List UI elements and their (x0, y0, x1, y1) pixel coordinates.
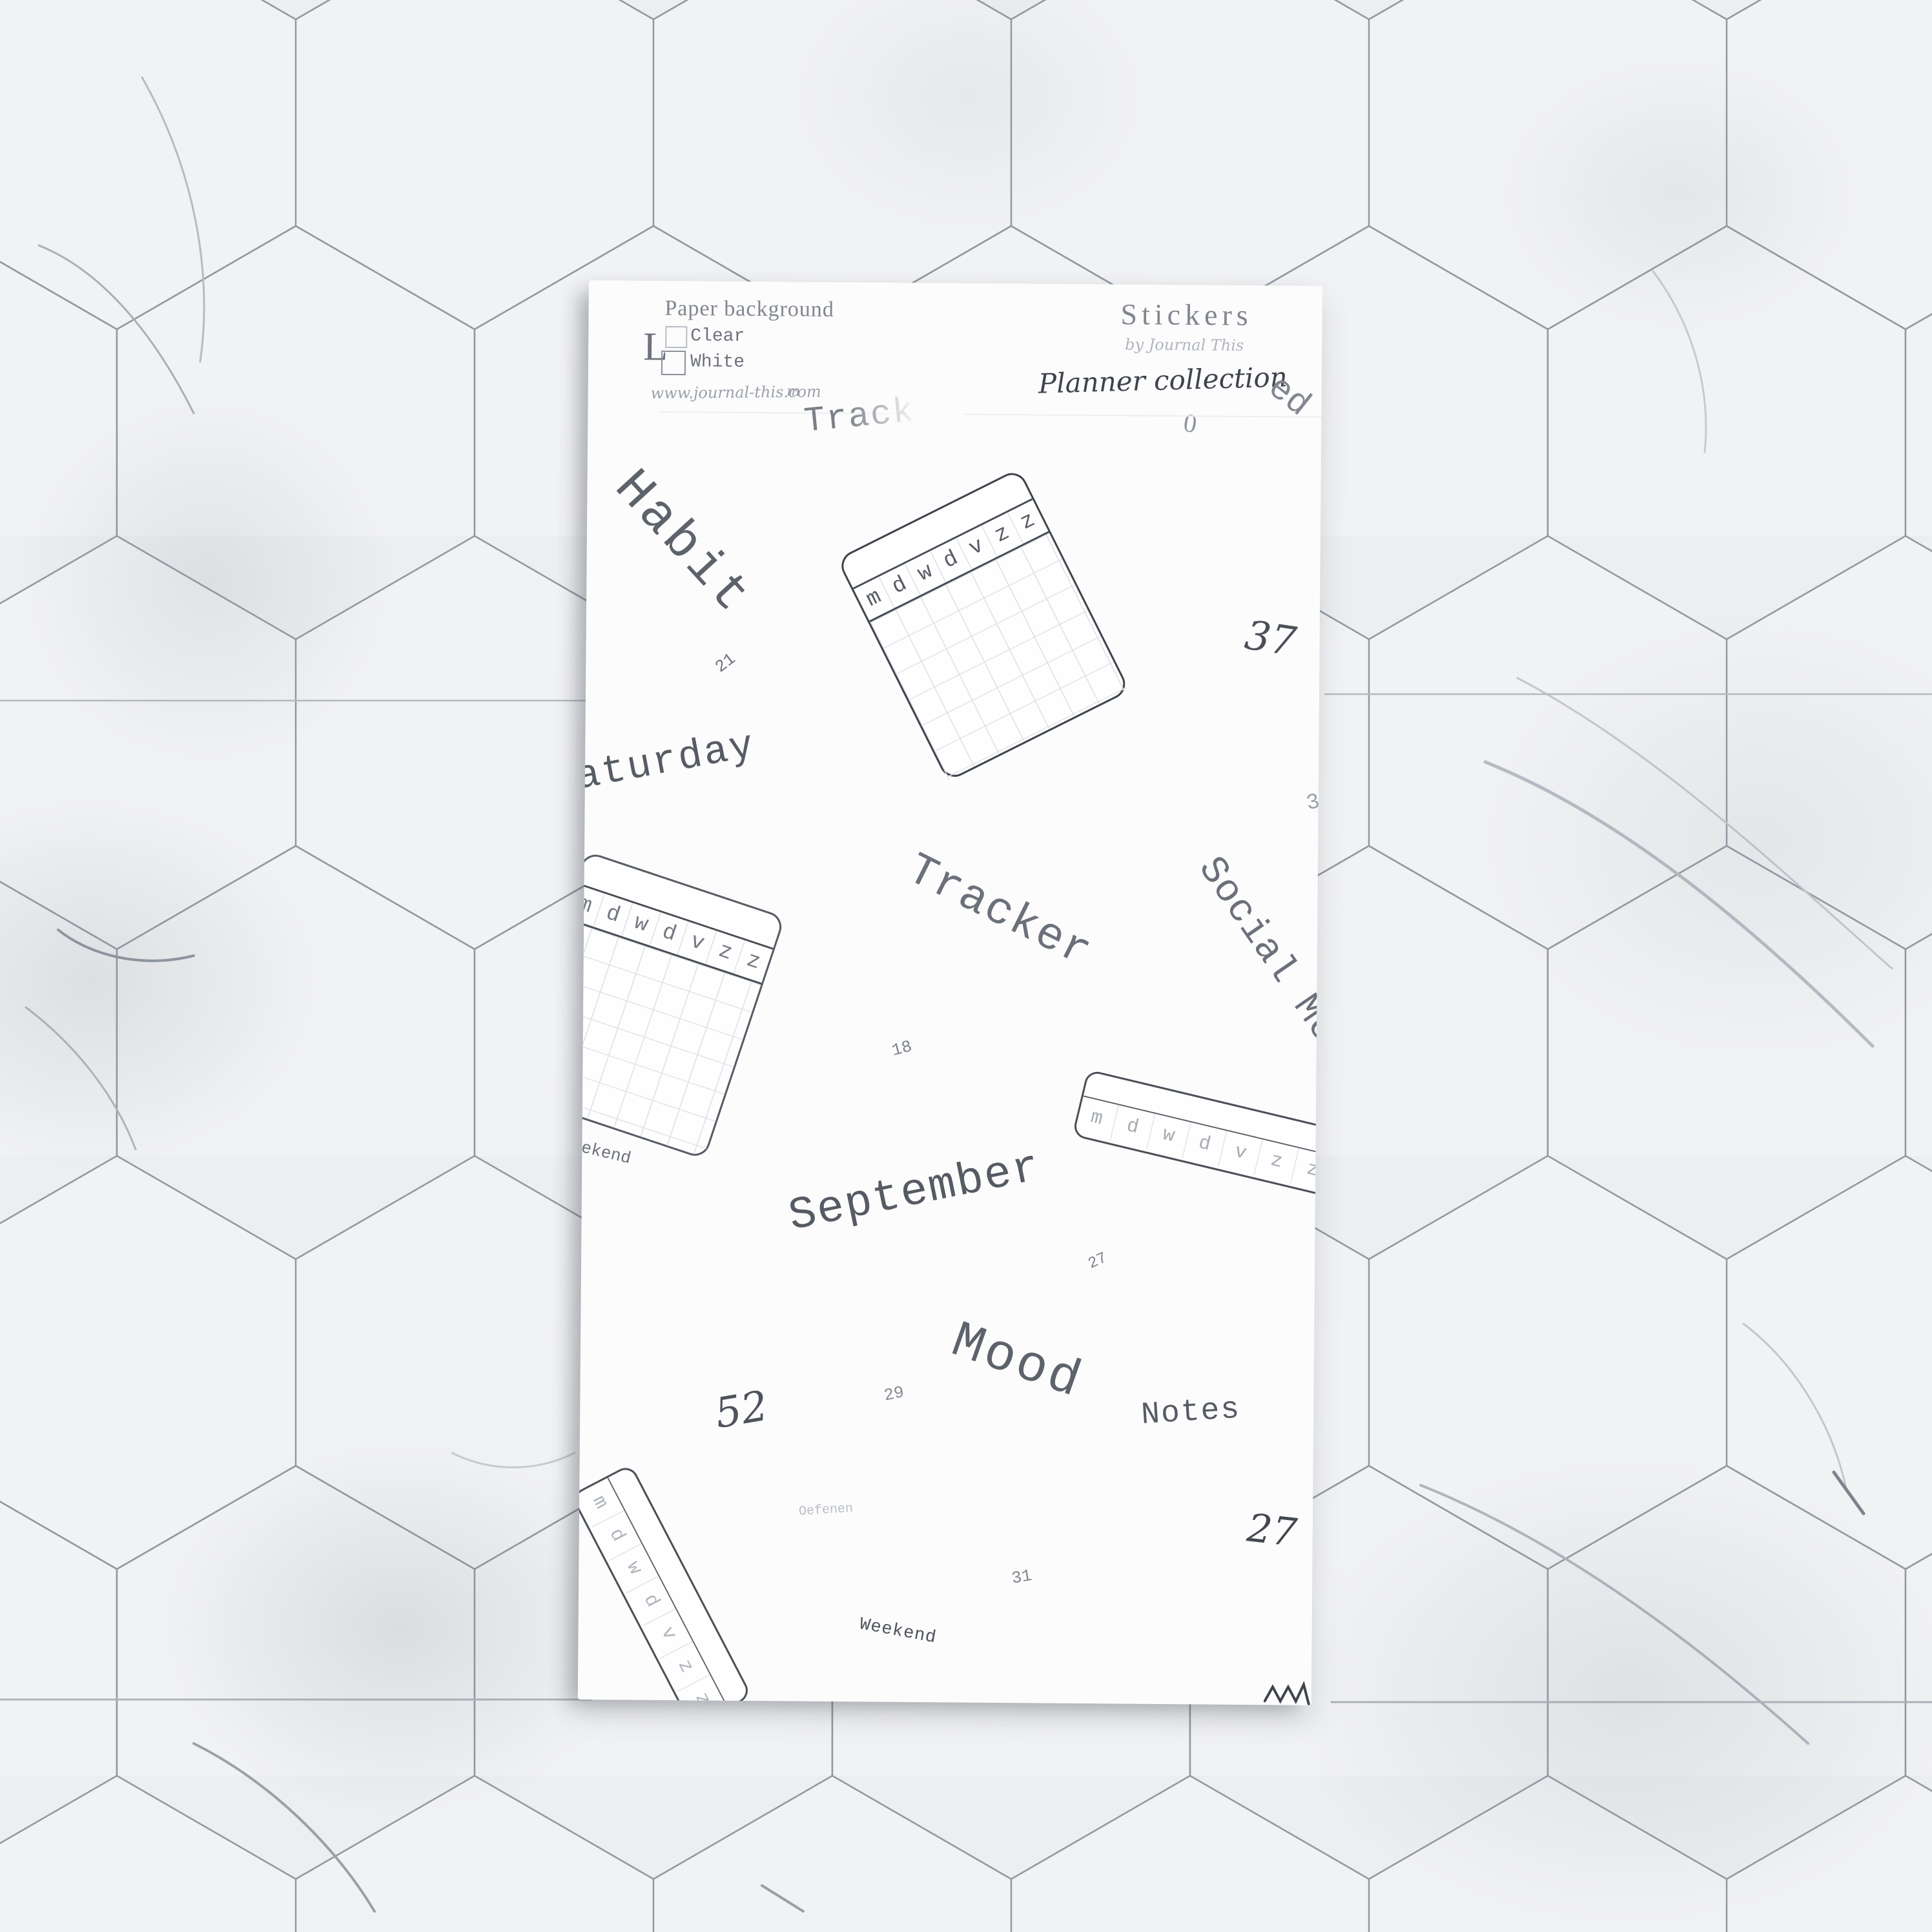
day-header-strip-sticker-1: m d w d v z z (1072, 1069, 1322, 1197)
number-21: 21 (712, 649, 739, 677)
sticker-word-tracker: Tracker (899, 845, 1100, 979)
tiny-m-remnant: m (786, 384, 800, 400)
sticker-word-mood: Mood (944, 1312, 1090, 1412)
sticker-sheet: Paper background L Clear White www.journ… (578, 280, 1322, 1705)
sticker-word-weekend-bottom: Weekend (858, 1615, 938, 1648)
sticker-word-saturday: Saturday (578, 722, 759, 805)
calendar-grid-sticker-1: m d w d v z z (836, 468, 1130, 783)
sticker-word-weekend-side: Weekend (578, 1133, 633, 1169)
collection-title: Planner collection (1038, 361, 1288, 399)
number-29: 29 (882, 1382, 906, 1406)
sticker-word-notes: Notes (1140, 1392, 1242, 1433)
number-27-big: 27 (1245, 1505, 1299, 1556)
clear-checkbox (665, 326, 687, 348)
white-checkbox-label: White (690, 352, 745, 373)
calendar-grid-sticker-2: m d w d v z z (578, 850, 786, 1160)
sticker-word-habit: Habit (602, 459, 763, 627)
stray-digit-zero: 0 (1182, 407, 1199, 439)
sticker-word-social-media: Social Me (1188, 849, 1322, 1051)
sticker-word-september: September (785, 1142, 1045, 1244)
sticker-cut-line (659, 411, 1321, 418)
clear-checkbox-label: Clear (690, 326, 745, 347)
cut-word-tracker-top: Tracker (803, 388, 961, 442)
number-37: 37 (1242, 611, 1299, 665)
number-27-mid: 27 (1085, 1249, 1109, 1273)
faint-word-oefenen: Oefenen (798, 1501, 853, 1519)
brand-title: Stickers (1120, 297, 1253, 333)
brand-byline: by Journal This (1125, 336, 1244, 355)
product-photo-stage: Paper background L Clear White www.journ… (0, 0, 1932, 1932)
white-checkbox (661, 351, 686, 375)
number-31: 31 (1010, 1566, 1033, 1588)
day-header-strip-sticker-2: m d w d v z z (578, 1463, 752, 1705)
fade-mask (798, 384, 965, 446)
paper-background-title: Paper background (664, 296, 834, 322)
number-18: 18 (890, 1036, 914, 1060)
number-52: 52 (712, 1382, 772, 1438)
